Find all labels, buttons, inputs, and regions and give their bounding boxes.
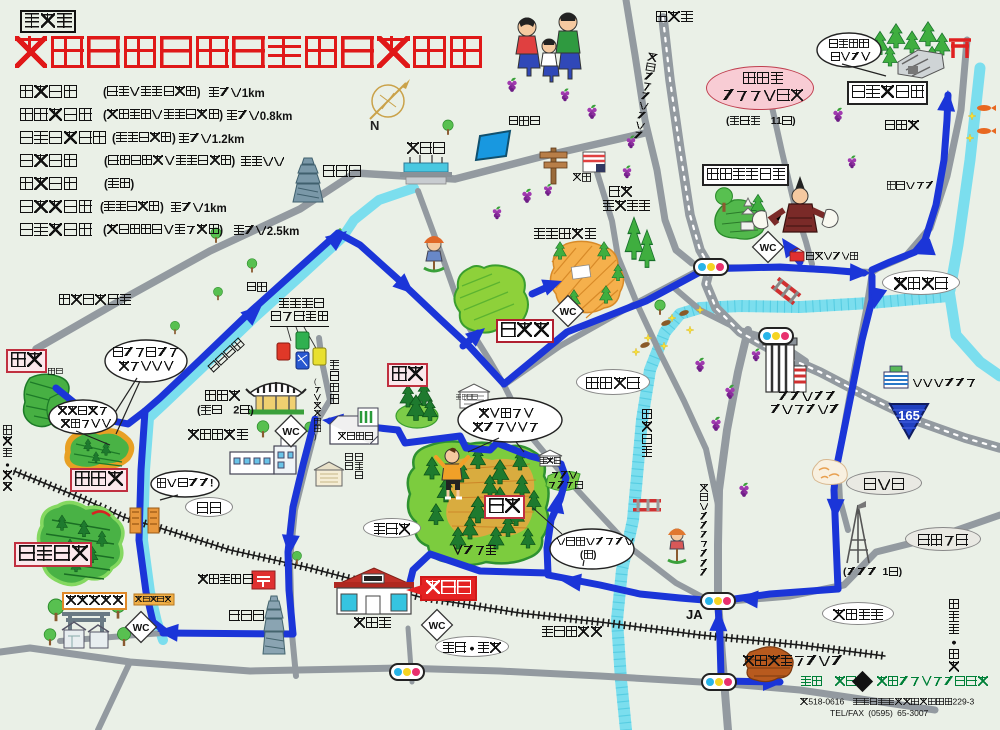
svg-text:165: 165 [898, 408, 920, 423]
svg-text:N: N [370, 118, 379, 133]
